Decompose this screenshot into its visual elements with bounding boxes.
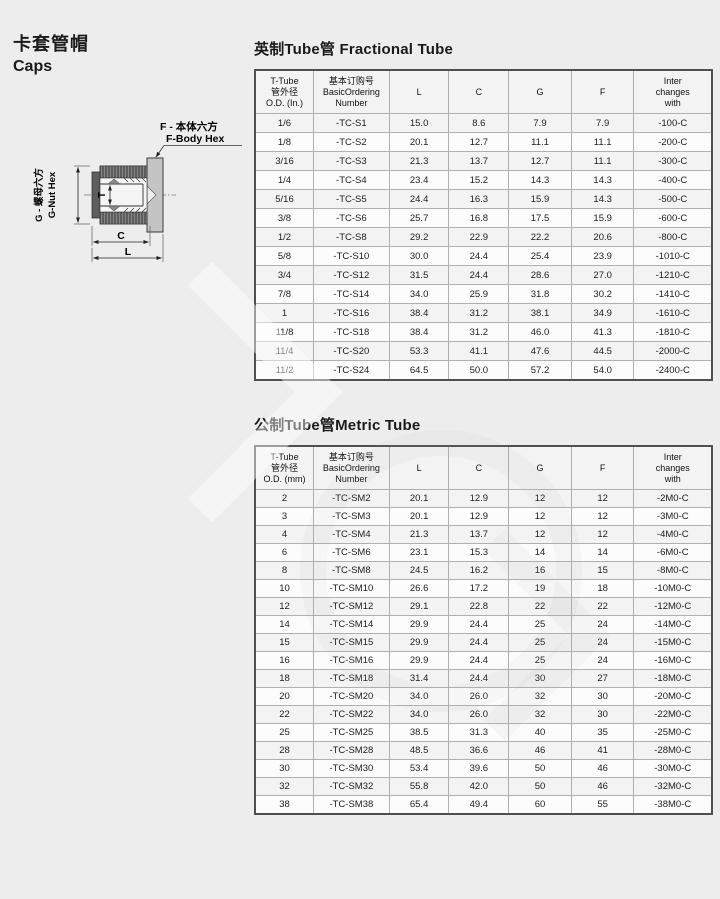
table-row: 14-TC-SM1429.924.42524-14M0-C — [255, 616, 712, 634]
table-cell: 27 — [571, 670, 634, 688]
table-cell: 1/8 — [255, 133, 313, 152]
column-header: 基本订购号 BasicOrdering Number — [313, 446, 389, 490]
table-cell: 23.4 — [389, 171, 449, 190]
column-header: T-Tube 管外径 O.D. (mm) — [255, 446, 313, 490]
table-cell: 18 — [571, 580, 634, 598]
table-cell: -TC-S18 — [313, 323, 389, 342]
table-cell: 28.6 — [509, 266, 572, 285]
table-cell: -12M0-C — [634, 598, 712, 616]
table-cell: 15.0 — [389, 114, 449, 133]
table-row: 22-TC-SM2234.026.03230-22M0-C — [255, 706, 712, 724]
table-cell: 15 — [255, 634, 313, 652]
table-cell: 40 — [509, 724, 572, 742]
table-cell: 24.4 — [449, 652, 509, 670]
table-cell: -18M0-C — [634, 670, 712, 688]
table-row: 11/4-TC-S2053.341.147.644.5-2000-C — [255, 342, 712, 361]
table-cell: -6M0-C — [634, 544, 712, 562]
table-cell: 7.9 — [571, 114, 634, 133]
column-header: G — [509, 70, 572, 114]
table-cell: 23.9 — [571, 247, 634, 266]
table-cell: -TC-SM15 — [313, 634, 389, 652]
table-cell: -300-C — [634, 152, 712, 171]
table-row: 4-TC-SM421.313.71212-4M0-C — [255, 526, 712, 544]
table-cell: 3/16 — [255, 152, 313, 171]
table-cell: 57.2 — [509, 361, 572, 381]
table-cell: 46.0 — [509, 323, 572, 342]
table-cell: 65.4 — [389, 796, 449, 815]
table-cell: 50 — [509, 778, 572, 796]
table-cell: -TC-SM30 — [313, 760, 389, 778]
table-cell: 29.9 — [389, 634, 449, 652]
table-cell: -1210-C — [634, 266, 712, 285]
table-cell: -2M0-C — [634, 490, 712, 508]
table-cell: 30 — [571, 706, 634, 724]
table-cell: -800-C — [634, 228, 712, 247]
fractional-tube-table: T-Tube 管外径 O.D. (In.)基本订购号 BasicOrdering… — [254, 69, 713, 381]
table-cell: 8.6 — [449, 114, 509, 133]
table-row: 5/8-TC-S1030.024.425.423.9-1010-C — [255, 247, 712, 266]
table-cell: 20.1 — [389, 133, 449, 152]
table-row: 11/8-TC-S1838.431.246.041.3-1810-C — [255, 323, 712, 342]
table-cell: 12.9 — [449, 508, 509, 526]
table-cell: 25.7 — [389, 209, 449, 228]
table-cell: -2000-C — [634, 342, 712, 361]
column-header: L — [389, 446, 449, 490]
table-cell: 30.0 — [389, 247, 449, 266]
table-cell: -1410-C — [634, 285, 712, 304]
table-cell: 17.2 — [449, 580, 509, 598]
table-cell: -1610-C — [634, 304, 712, 323]
fractional-table-header: T-Tube 管外径 O.D. (In.)基本订购号 BasicOrdering… — [255, 70, 712, 114]
table-cell: -TC-SM10 — [313, 580, 389, 598]
table-cell: -TC-SM14 — [313, 616, 389, 634]
table-cell: -4M0-C — [634, 526, 712, 544]
table-cell: 17.5 — [509, 209, 572, 228]
table-cell: 4 — [255, 526, 313, 544]
table-cell: 46 — [571, 778, 634, 796]
table-cell: 1 — [255, 304, 313, 323]
table-cell: 24.4 — [389, 190, 449, 209]
table-row: 12-TC-SM1229.122.82222-12M0-C — [255, 598, 712, 616]
table-cell: 38.4 — [389, 323, 449, 342]
table-cell: -10M0-C — [634, 580, 712, 598]
table-cell: 54.0 — [571, 361, 634, 381]
table-cell: -TC-SM28 — [313, 742, 389, 760]
dim-label-L: L — [125, 246, 132, 258]
table-cell: 11/4 — [255, 342, 313, 361]
table-cell: 47.6 — [509, 342, 572, 361]
table-cell: -TC-S3 — [313, 152, 389, 171]
table-cell: 55.8 — [389, 778, 449, 796]
table-cell: 44.5 — [571, 342, 634, 361]
table-cell: -TC-S4 — [313, 171, 389, 190]
table-row: 15-TC-SM1529.924.42524-15M0-C — [255, 634, 712, 652]
table-row: 16-TC-SM1629.924.42524-16M0-C — [255, 652, 712, 670]
table-cell: -20M0-C — [634, 688, 712, 706]
table-cell: 15.9 — [509, 190, 572, 209]
table-cell: 25 — [509, 652, 572, 670]
table-row: 1-TC-S1638.431.238.134.9-1610-C — [255, 304, 712, 323]
column-header: T-Tube 管外径 O.D. (In.) — [255, 70, 313, 114]
table-cell: 38.4 — [389, 304, 449, 323]
table-cell: -TC-SM8 — [313, 562, 389, 580]
table-cell: 30.2 — [571, 285, 634, 304]
table-row: 25-TC-SM2538.531.34035-25M0-C — [255, 724, 712, 742]
column-header: L — [389, 70, 449, 114]
table-cell: 53.4 — [389, 760, 449, 778]
table-row: 1/4-TC-S423.415.214.314.3-400-C — [255, 171, 712, 190]
table-cell: 50 — [509, 760, 572, 778]
table-cell: 29.1 — [389, 598, 449, 616]
table-cell: -TC-SM12 — [313, 598, 389, 616]
table-cell: -TC-SM3 — [313, 508, 389, 526]
table-cell: 35 — [571, 724, 634, 742]
table-cell: 26.0 — [449, 688, 509, 706]
table-cell: 3 — [255, 508, 313, 526]
table-cell: 24.4 — [449, 616, 509, 634]
table-row: 32-TC-SM3255.842.05046-32M0-C — [255, 778, 712, 796]
table-cell: 13.7 — [449, 152, 509, 171]
table-cell: 27.0 — [571, 266, 634, 285]
table-cell: 12.7 — [449, 133, 509, 152]
table-cell: 22.9 — [449, 228, 509, 247]
table-cell: -1010-C — [634, 247, 712, 266]
table-cell: -TC-S12 — [313, 266, 389, 285]
fractional-table-title: 英制Tube管 Fractional Tube — [254, 38, 713, 59]
table-cell: 20 — [255, 688, 313, 706]
table-cell: 18 — [255, 670, 313, 688]
nut-knurl-bottom — [100, 212, 147, 224]
table-cell: 32 — [509, 688, 572, 706]
table-cell: 29.9 — [389, 616, 449, 634]
table-cell: 12 — [571, 526, 634, 544]
table-cell: -16M0-C — [634, 652, 712, 670]
column-header: F — [571, 70, 634, 114]
table-cell: 64.5 — [389, 361, 449, 381]
table-cell: -32M0-C — [634, 778, 712, 796]
table-cell: -15M0-C — [634, 634, 712, 652]
table-cell: -3M0-C — [634, 508, 712, 526]
table-cell: -TC-SM25 — [313, 724, 389, 742]
table-cell: 41 — [571, 742, 634, 760]
table-cell: 32 — [255, 778, 313, 796]
table-cell: -TC-SM38 — [313, 796, 389, 815]
table-row: 28-TC-SM2848.536.64641-28M0-C — [255, 742, 712, 760]
table-cell: 11.1 — [571, 133, 634, 152]
table-cell: 30 — [571, 688, 634, 706]
table-cell: 16.3 — [449, 190, 509, 209]
table-cell: -8M0-C — [634, 562, 712, 580]
dim-label-C: C — [117, 230, 125, 242]
table-cell: -38M0-C — [634, 796, 712, 815]
table-cell: 36.6 — [449, 742, 509, 760]
g-nut-hex-label-en: G-Nut Hex — [47, 171, 58, 218]
table-cell: 24 — [571, 652, 634, 670]
table-cell: -TC-S20 — [313, 342, 389, 361]
table-cell: 2 — [255, 490, 313, 508]
table-cell: 14.3 — [509, 171, 572, 190]
table-cell: -TC-SM4 — [313, 526, 389, 544]
table-row: 1/8-TC-S220.112.711.111.1-200-C — [255, 133, 712, 152]
column-header: G — [509, 446, 572, 490]
table-cell: 24.4 — [449, 670, 509, 688]
table-cell: 31.3 — [449, 724, 509, 742]
table-cell: -14M0-C — [634, 616, 712, 634]
table-cell: -TC-SM22 — [313, 706, 389, 724]
table-cell: -400-C — [634, 171, 712, 190]
table-row: 3/8-TC-S625.716.817.515.9-600-C — [255, 209, 712, 228]
table-cell: 5/16 — [255, 190, 313, 209]
table-row: 30-TC-SM3053.439.65046-30M0-C — [255, 760, 712, 778]
table-cell: 22 — [509, 598, 572, 616]
table-cell: -TC-S24 — [313, 361, 389, 381]
table-cell: 55 — [571, 796, 634, 815]
table-cell: 22 — [255, 706, 313, 724]
table-cell: 12.7 — [509, 152, 572, 171]
table-row: 10-TC-SM1026.617.21918-10M0-C — [255, 580, 712, 598]
table-cell: 12 — [571, 490, 634, 508]
table-cell: 24.5 — [389, 562, 449, 580]
table-row: 18-TC-SM1831.424.43027-18M0-C — [255, 670, 712, 688]
column-header: F — [571, 446, 634, 490]
table-cell: 11.1 — [509, 133, 572, 152]
table-cell: -1810-C — [634, 323, 712, 342]
table-cell: -28M0-C — [634, 742, 712, 760]
table-cell: 25.4 — [509, 247, 572, 266]
table-cell: 14.3 — [571, 190, 634, 209]
table-row: 8-TC-SM824.516.21615-8M0-C — [255, 562, 712, 580]
table-cell: 19 — [509, 580, 572, 598]
table-cell: 24.4 — [449, 634, 509, 652]
table-cell: 7.9 — [509, 114, 572, 133]
table-cell: 1/2 — [255, 228, 313, 247]
cap-diagram-svg: T G - 螺母六方 G-Nut Hex C L F - 本体六方 F-Body… — [28, 118, 268, 293]
table-row: 20-TC-SM2034.026.03230-20M0-C — [255, 688, 712, 706]
table-cell: 14 — [509, 544, 572, 562]
table-cell: 24 — [571, 634, 634, 652]
table-cell: -TC-S8 — [313, 228, 389, 247]
table-cell: 29.2 — [389, 228, 449, 247]
table-cell: 25 — [509, 634, 572, 652]
nut-knurl-top — [100, 166, 147, 178]
table-cell: 38.5 — [389, 724, 449, 742]
table-row: 38-TC-SM3865.449.46055-38M0-C — [255, 796, 712, 815]
table-cell: 20.1 — [389, 490, 449, 508]
table-cell: 32 — [509, 706, 572, 724]
table-cell: 12.9 — [449, 490, 509, 508]
table-cell: 16.8 — [449, 209, 509, 228]
table-cell: -200-C — [634, 133, 712, 152]
table-cell: 16 — [509, 562, 572, 580]
table-cell: -TC-SM32 — [313, 778, 389, 796]
table-cell: 31.4 — [389, 670, 449, 688]
column-header: Inter changes with — [634, 446, 712, 490]
table-cell: 34.0 — [389, 706, 449, 724]
table-cell: 5/8 — [255, 247, 313, 266]
table-cell: 29.9 — [389, 652, 449, 670]
table-cell: -100-C — [634, 114, 712, 133]
table-cell: 22 — [571, 598, 634, 616]
table-cell: 30 — [255, 760, 313, 778]
table-cell: 34.0 — [389, 688, 449, 706]
table-cell: -TC-SM6 — [313, 544, 389, 562]
column-header: 基本订购号 BasicOrdering Number — [313, 70, 389, 114]
table-cell: 22.8 — [449, 598, 509, 616]
column-header: Inter changes with — [634, 70, 712, 114]
table-cell: 21.3 — [389, 152, 449, 171]
table-cell: 24.4 — [449, 266, 509, 285]
table-row: 2-TC-SM220.112.91212-2M0-C — [255, 490, 712, 508]
table-cell: -TC-SM16 — [313, 652, 389, 670]
table-cell: 25 — [255, 724, 313, 742]
table-cell: 25.9 — [449, 285, 509, 304]
table-cell: -2400-C — [634, 361, 712, 381]
table-cell: 15.2 — [449, 171, 509, 190]
table-cell: 41.3 — [571, 323, 634, 342]
table-cell: 12 — [509, 526, 572, 544]
table-cell: 15.3 — [449, 544, 509, 562]
table-cell: 31.2 — [449, 304, 509, 323]
table-cell: 39.6 — [449, 760, 509, 778]
column-header: C — [449, 70, 509, 114]
table-cell: -TC-S14 — [313, 285, 389, 304]
table-cell: 15.9 — [571, 209, 634, 228]
table-cell: -500-C — [634, 190, 712, 209]
table-cell: 16.2 — [449, 562, 509, 580]
g-nut-hex-label-zh: G - 螺母六方 — [33, 168, 45, 222]
table-cell: 60 — [509, 796, 572, 815]
table-cell: 41.1 — [449, 342, 509, 361]
table-cell: 42.0 — [449, 778, 509, 796]
table-cell: 3/8 — [255, 209, 313, 228]
page-title-en: Caps — [13, 58, 89, 76]
table-cell: 11.1 — [571, 152, 634, 171]
table-cell: 38 — [255, 796, 313, 815]
table-cell: 50.0 — [449, 361, 509, 381]
table-cell: 49.4 — [449, 796, 509, 815]
table-cell: 12 — [509, 490, 572, 508]
table-cell: 31.2 — [449, 323, 509, 342]
table-cell: -TC-SM2 — [313, 490, 389, 508]
table-cell: 13.7 — [449, 526, 509, 544]
table-cell: 46 — [571, 760, 634, 778]
table-cell: 30 — [509, 670, 572, 688]
table-row: 1/2-TC-S829.222.922.220.6-800-C — [255, 228, 712, 247]
table-cell: 22.2 — [509, 228, 572, 247]
f-body-hex-label-zh: F - 本体六方 — [160, 120, 218, 133]
table-cell: -TC-S6 — [313, 209, 389, 228]
table-cell: -TC-SM20 — [313, 688, 389, 706]
column-header: C — [449, 446, 509, 490]
table-row: 5/16-TC-S524.416.315.914.3-500-C — [255, 190, 712, 209]
table-cell: 10 — [255, 580, 313, 598]
table-cell: 48.5 — [389, 742, 449, 760]
table-cell: 31.8 — [509, 285, 572, 304]
table-cell: 12 — [571, 508, 634, 526]
table-cell: 3/4 — [255, 266, 313, 285]
table-cell: 14 — [255, 616, 313, 634]
table-cell: 14.3 — [571, 171, 634, 190]
table-cell: 46 — [509, 742, 572, 760]
page-title-block: 卡套管帽 Caps — [13, 30, 89, 76]
metric-table-title: 公制Tube管Metric Tube — [254, 414, 713, 435]
table-row: 3/16-TC-S321.313.712.711.1-300-C — [255, 152, 712, 171]
table-cell: -TC-S1 — [313, 114, 389, 133]
callout-leader — [156, 146, 164, 158]
metric-table-header: T-Tube 管外径 O.D. (mm)基本订购号 BasicOrdering … — [255, 446, 712, 490]
table-cell: 24 — [571, 616, 634, 634]
table-cell: 28 — [255, 742, 313, 760]
table-cell: 7/8 — [255, 285, 313, 304]
table-row: 11/2-TC-S2464.550.057.254.0-2400-C — [255, 361, 712, 381]
table-cell: -22M0-C — [634, 706, 712, 724]
table-cell: -TC-S2 — [313, 133, 389, 152]
table-cell: 6 — [255, 544, 313, 562]
table-cell: 23.1 — [389, 544, 449, 562]
table-cell: 1/6 — [255, 114, 313, 133]
table-row: 7/8-TC-S1434.025.931.830.2-1410-C — [255, 285, 712, 304]
cap-cross-section-diagram: T G - 螺母六方 G-Nut Hex C L F - 本体六方 F-Body… — [28, 118, 268, 293]
table-row: 6-TC-SM623.115.31414-6M0-C — [255, 544, 712, 562]
table-cell: 21.3 — [389, 526, 449, 544]
table-cell: -TC-S16 — [313, 304, 389, 323]
table-cell: 16 — [255, 652, 313, 670]
table-cell: -TC-SM18 — [313, 670, 389, 688]
table-cell: 15 — [571, 562, 634, 580]
table-cell: 38.1 — [509, 304, 572, 323]
table-cell: 1/4 — [255, 171, 313, 190]
table-cell: 24.4 — [449, 247, 509, 266]
table-row: 3/4-TC-S1231.524.428.627.0-1210-C — [255, 266, 712, 285]
table-cell: 26.6 — [389, 580, 449, 598]
table-cell: 53.3 — [389, 342, 449, 361]
table-cell: -TC-S10 — [313, 247, 389, 266]
table-cell: 31.5 — [389, 266, 449, 285]
table-cell: 26.0 — [449, 706, 509, 724]
table-cell: 11/8 — [255, 323, 313, 342]
table-cell: 25 — [509, 616, 572, 634]
table-cell: -30M0-C — [634, 760, 712, 778]
table-cell: 8 — [255, 562, 313, 580]
table-cell: -TC-S5 — [313, 190, 389, 209]
table-cell: 34.9 — [571, 304, 634, 323]
tables-column: 英制Tube管 Fractional Tube T-Tube 管外径 O.D. … — [254, 38, 713, 815]
table-cell: -25M0-C — [634, 724, 712, 742]
table-cell: 20.1 — [389, 508, 449, 526]
table-cell: 12 — [509, 508, 572, 526]
table-cell: 11/2 — [255, 361, 313, 381]
page-title-zh: 卡套管帽 — [13, 30, 89, 56]
f-body-hex-label-en: F-Body Hex — [166, 133, 225, 145]
table-cell: 34.0 — [389, 285, 449, 304]
table-cell: -600-C — [634, 209, 712, 228]
table-row: 3-TC-SM320.112.91212-3M0-C — [255, 508, 712, 526]
table-cell: 12 — [255, 598, 313, 616]
table-cell: 14 — [571, 544, 634, 562]
dim-label-T: T — [97, 192, 108, 198]
table-row: 1/6-TC-S115.08.67.97.9-100-C — [255, 114, 712, 133]
table-cell: 20.6 — [571, 228, 634, 247]
metric-tube-table: T-Tube 管外径 O.D. (mm)基本订购号 BasicOrdering … — [254, 445, 713, 815]
